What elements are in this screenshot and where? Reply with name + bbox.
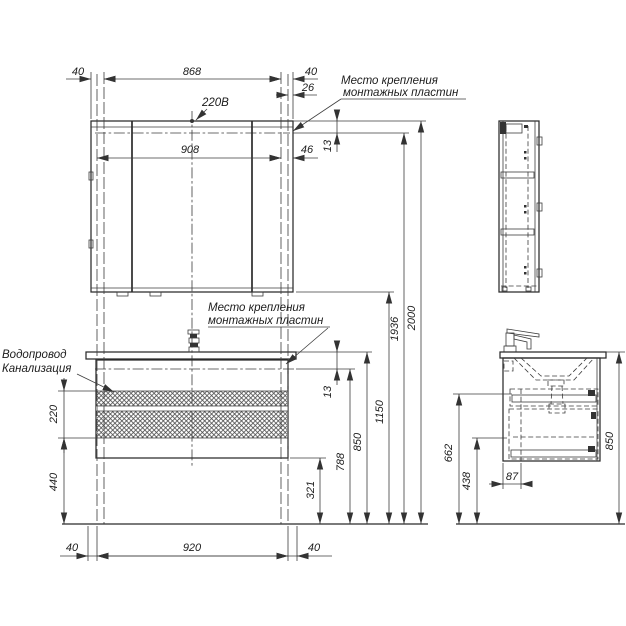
dim-bottom-right-40: 40 xyxy=(308,542,321,554)
technical-drawing: 40 868 40 26 908 46 13 13 xyxy=(0,0,626,626)
dim-13-mid: 13 xyxy=(322,385,334,398)
dim-1936: 1936 xyxy=(389,316,401,341)
drawer-slide-bottom xyxy=(511,450,596,457)
side-view-vanity xyxy=(456,329,625,524)
dim-top-left-40: 40 xyxy=(72,66,85,78)
water-supply-label: Водопровод xyxy=(2,349,66,361)
mount-plate-top-label-2: монтажных пластин xyxy=(343,87,459,99)
countertop-front xyxy=(86,352,296,359)
dim-788: 788 xyxy=(335,452,347,471)
dim-87: 87 xyxy=(506,471,519,483)
drawing-page: 40 868 40 26 908 46 13 13 xyxy=(0,0,626,626)
dim-920: 920 xyxy=(183,542,202,554)
wall-strips xyxy=(97,72,288,524)
dim-438: 438 xyxy=(461,471,473,490)
dim-13-top: 13 xyxy=(322,139,334,152)
front-view xyxy=(62,72,428,524)
dim-1150: 1150 xyxy=(374,399,386,424)
drawer-slide-top xyxy=(512,395,596,402)
dim-850: 850 xyxy=(352,432,364,451)
dim-side-850: 850 xyxy=(604,431,616,450)
dim-26: 26 xyxy=(301,82,315,94)
mount-plate-top-label-1: Место крепления xyxy=(341,75,438,87)
faucet-front xyxy=(188,330,199,352)
dim-662: 662 xyxy=(443,444,455,462)
dim-220: 220 xyxy=(48,404,60,424)
dim-321: 321 xyxy=(305,481,317,499)
mount-plate-mid-label-2: монтажных пластин xyxy=(208,315,324,327)
dim-868: 868 xyxy=(183,66,202,78)
mount-plate-mid-label-1: Место крепления xyxy=(208,302,305,314)
dim-46: 46 xyxy=(301,144,314,156)
dim-440: 440 xyxy=(48,472,60,491)
callouts: 220В Место крепления монтажных пластин М… xyxy=(2,75,466,392)
dim-top-right-40: 40 xyxy=(305,66,318,78)
plumbing-zone-hatch xyxy=(97,391,287,438)
faucet-side xyxy=(504,329,539,352)
dim-bottom-left-40: 40 xyxy=(66,542,79,554)
dim-2000: 2000 xyxy=(406,305,418,331)
dim-908: 908 xyxy=(181,144,200,156)
side-view-mirror-cabinet xyxy=(499,121,542,292)
sewerage-label: Канализация xyxy=(2,363,71,375)
power-label: 220В xyxy=(201,97,229,109)
